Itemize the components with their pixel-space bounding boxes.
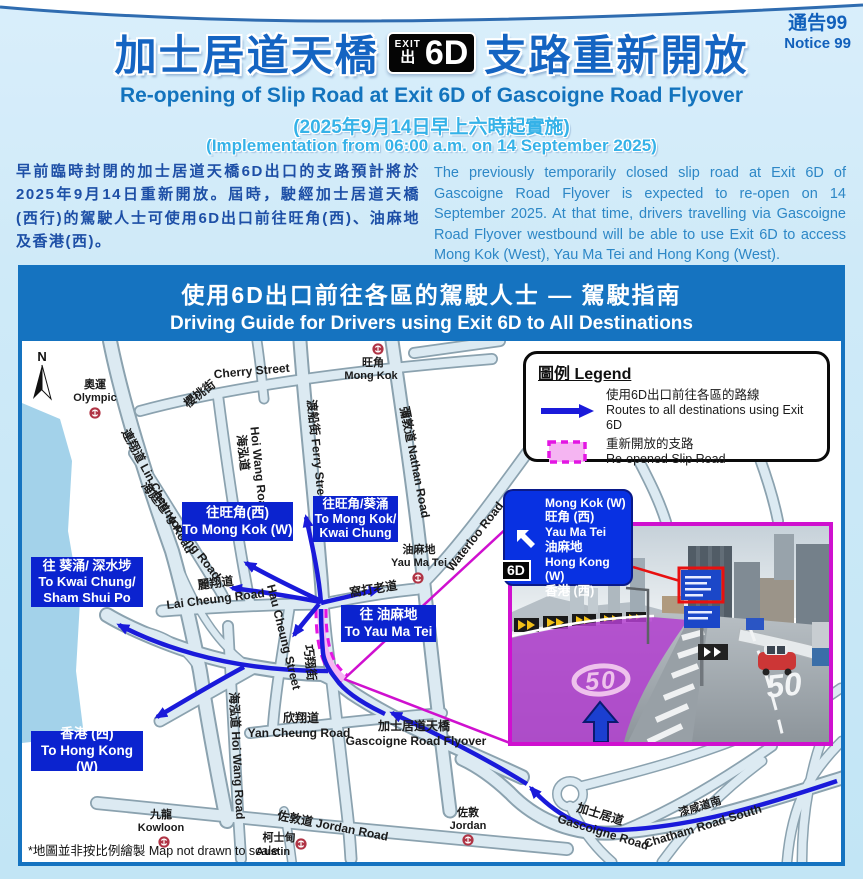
exit-badge-zh: 出 <box>400 50 415 65</box>
page-title-en: Re-opening of Slip Road at Exit 6D of Ga… <box>0 84 863 108</box>
legend-route-zh: 使用6D出口前往各區的路線 <box>606 388 817 403</box>
sign-line-hong-kong-zh: 香港 (西) <box>545 584 627 599</box>
svg-text:N: N <box>37 349 46 364</box>
north-arrow: N <box>33 349 51 399</box>
svg-text:Kowloon: Kowloon <box>138 822 185 834</box>
legend-slip-zh: 重新開放的支路 <box>606 437 726 452</box>
svg-text:油麻地: 油麻地 <box>403 542 436 556</box>
map-footnote: *地圖並非按比例繪製 Map not drawn to scale <box>28 840 278 859</box>
notice-poster: 通告99 Notice 99 加士居道天橋 EXIT 出 6D 支路重新開放 R… <box>0 0 863 879</box>
implementation-date-zh: (2025年9月14日早上六時起實施) <box>0 112 863 139</box>
svg-text:Yau Ma Tei: Yau Ma Tei <box>391 557 447 569</box>
svg-text:50: 50 <box>584 666 618 696</box>
mtr-icon <box>412 572 423 583</box>
intro-paragraph-en: The previously temporarily closed slip r… <box>434 163 846 266</box>
svg-text:九龍: 九龍 <box>149 807 172 821</box>
driving-guide-panel: 使用6D出口前往各區的駕駛人士 — 駕駛指南 Driving Guide for… <box>18 265 845 866</box>
panel-title-zh: 使用6D出口前往各區的駕駛人士 — 駕駛指南 <box>181 276 681 310</box>
legend-route-row: 使用6D出口前往各區的路線 Routes to all destinations… <box>538 388 817 433</box>
dest-box-hong-kong-west: 香港 (西) To Hong Kong (W) <box>31 731 143 771</box>
slip-road-swatch-icon <box>547 440 587 464</box>
street-gascoigne-road-flyover-zh: 加士居道天橋 <box>377 718 451 733</box>
page-title-zh-left: 加士居道天橋 <box>115 22 379 83</box>
legend-route-en: Routes to all destinations using Exit 6D <box>606 403 817 433</box>
street-lai-cheung-road-zh: 麗翔道 <box>197 573 235 592</box>
page-title-zh-right: 支路重新開放 <box>484 22 748 83</box>
sign-exit-6d-badge: 6D <box>501 560 531 581</box>
dest-box-kwai-chung-sham-shui-po: 往 葵涌/ 深水埗 To Kwai Chung/ Sham Shui Po <box>31 557 143 607</box>
page-title: 加士居道天橋 EXIT 出 6D 支路重新開放 <box>0 22 863 83</box>
implementation-date-en: (Implementation from 06:00 a.m. on 14 Se… <box>0 136 863 156</box>
panel-title-en: Driving Guide for Drivers using Exit 6D … <box>170 313 693 335</box>
legend-slip-row: 重新開放的支路 Re-opened Slip Road <box>538 437 817 467</box>
legend-slip-en: Re-opened Slip Road <box>606 452 726 467</box>
exit-6d-badge: EXIT 出 6D <box>387 32 477 74</box>
dest-box-mong-kok-kwai-chung: 往旺角/葵涌 To Mong Kok/ Kwai Chung <box>313 496 398 542</box>
legend: 圖例 Legend 使用6D出口前往各區的路線 Routes to all de… <box>523 351 830 462</box>
speed-marking-right: 50 <box>764 665 803 705</box>
street-yan-cheung-road-en: Yan Cheung Road <box>248 726 351 740</box>
station-yau-ma-tei: 油麻地 Yau Ma Tei <box>391 542 447 584</box>
sign-line-hong-kong-en: Hong Kong (W) <box>545 555 627 584</box>
exit-badge-code: 6D <box>425 36 468 70</box>
sign-line-mong-kok-zh: 旺角 (西) <box>545 510 627 525</box>
sign-line-yau-ma-tei-en: Yau Ma Tei <box>545 525 627 539</box>
map-area: N Cherry Street 櫻桃街 連翔道 Lin Cheung Road … <box>22 341 841 862</box>
sign-line-mong-kok-en: Mong Kok (W) <box>545 496 627 510</box>
street-yan-cheung-road-zh: 欣翔道 <box>283 710 319 725</box>
svg-text:Jordan: Jordan <box>450 820 487 832</box>
svg-text:Olympic: Olympic <box>73 392 116 404</box>
legend-title: 圖例 Legend <box>538 360 817 384</box>
mtr-icon <box>372 343 383 354</box>
route-arrow-icon <box>539 404 595 418</box>
svg-text:奧運: 奧運 <box>84 377 107 391</box>
dest-box-yau-ma-tei: 往 油麻地 To Yau Ma Tei <box>341 605 436 642</box>
truck <box>812 622 829 666</box>
exit-6d-road-sign: Mong Kok (W) 旺角 (西) Yau Ma Tei 油麻地 Hong … <box>503 489 633 586</box>
dest-box-mong-kok-west: 往旺角(西) To Mong Kok (W) <box>182 502 293 541</box>
mtr-icon <box>295 838 306 849</box>
station-olympic: 奧運 Olympic <box>73 377 116 419</box>
mtr-icon <box>89 407 100 418</box>
sign-line-yau-ma-tei-zh: 油麻地 <box>545 540 627 555</box>
svg-text:旺角: 旺角 <box>362 355 384 369</box>
intro-paragraph-zh: 早前臨時封閉的加士居道天橋6D出口的支路預計將於2025年9月14日重新開放。屆… <box>16 160 420 253</box>
svg-text:Mong Kok: Mong Kok <box>344 370 398 382</box>
svg-text:佐敦: 佐敦 <box>456 805 480 819</box>
up-left-arrow-icon <box>514 527 538 551</box>
street-gascoigne-road-flyover-en: Gascoigne Road Flyover <box>346 734 487 748</box>
mtr-icon <box>462 834 473 845</box>
panel-header: 使用6D出口前往各區的駕駛人士 — 駕駛指南 Driving Guide for… <box>22 269 841 341</box>
